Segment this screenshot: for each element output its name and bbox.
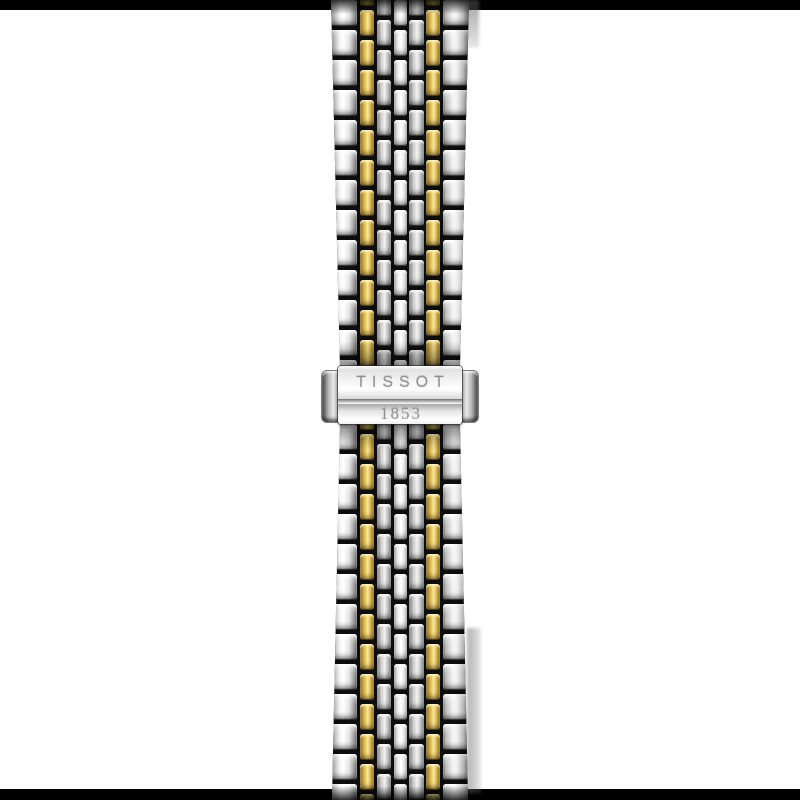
bracelet-link-gold [426,190,440,216]
bracelet-link-inner [409,594,424,620]
bracelet-link-edge [329,120,357,146]
bracelet-link-edge [329,604,357,630]
watch-bracelet: TISSOT 1853 [0,0,800,800]
bracelet-link-gold [426,280,440,306]
clasp-plate: TISSOT 1853 [338,366,462,424]
bracelet-link-inner [377,424,392,440]
bracelet-link-gold [360,494,374,520]
bracelet-link-edge [329,784,357,800]
bracelet-link-gold [426,310,440,336]
bracelet-link-gold [360,644,374,670]
bracelet-link-edge [443,240,471,266]
bracelet-link-inner [377,200,392,226]
bracelet-link-inner [377,444,392,470]
bracelet-link-center [394,784,407,800]
bracelet-link-inner [377,474,392,500]
bracelet-link-edge [329,180,357,206]
bracelet-link-inner [409,744,424,770]
bracelet-link-center [394,724,407,750]
bracelet-link-gold [360,220,374,246]
bracelet-link-edge [329,60,357,86]
bracelet-link-gold [360,130,374,156]
bracelet-link-gold [426,764,440,790]
bracelet-link-edge [443,424,471,450]
bracelet-link-center [394,240,407,266]
bracelet-link-inner [377,320,392,346]
bracelet-link-inner [377,594,392,620]
bracelet-link-inner [409,654,424,680]
bracelet-link-edge [443,634,471,660]
bracelet-link-inner [409,774,424,800]
bracelet-link-gold [360,764,374,790]
bracelet-link-gold [426,704,440,730]
clasp-left-flange [322,371,341,422]
bracelet-link-gold [360,100,374,126]
bracelet-link-edge [329,330,357,356]
bracelet-link-edge [443,270,471,296]
bracelet-link-gold [360,584,374,610]
bracelet-link-inner [377,684,392,710]
bracelet-link-gold [360,794,374,800]
bracelet-link-inner [377,260,392,286]
bracelet-link-edge [329,754,357,780]
bracelet-link-gold [426,70,440,96]
bracelet-link-edge [329,424,357,450]
bracelet-link-inner [409,80,424,106]
bracelet-link-edge [443,604,471,630]
bracelet-upper-strap [329,0,471,367]
bracelet-link-inner [409,170,424,196]
bracelet-link-center [394,330,407,356]
bracelet-link-inner [377,20,392,46]
bracelet-link-edge [443,360,471,367]
bracelet-link-center [394,180,407,206]
bracelet-link-edge [443,544,471,570]
bracelet-link-edge [443,514,471,540]
bracelet-link-gold [426,524,440,550]
bracelet-link-center [394,360,407,367]
product-photo-stage: TISSOT 1853 [0,0,800,800]
bracelet-link-edge [329,240,357,266]
bracelet-link-inner [377,80,392,106]
bracelet-link-gold [426,424,440,430]
bracelet-link-gold [360,70,374,96]
bracelet-link-edge [443,484,471,510]
bracelet-link-inner [377,504,392,530]
bracelet-link-edge [329,210,357,236]
bracelet-link-center [394,60,407,86]
bracelet-link-inner [409,0,424,16]
clasp-seam [338,399,462,404]
bracelet-link-inner [409,20,424,46]
bracelet-link-gold [360,190,374,216]
bracelet-link-inner [409,140,424,166]
bracelet-link-gold [426,674,440,700]
bracelet-link-inner [409,50,424,76]
bracelet-link-inner [409,504,424,530]
bracelet-link-edge [329,270,357,296]
bracelet-link-center [394,0,407,26]
bracelet-link-center [394,150,407,176]
bracelet-link-gold [426,434,440,460]
bracelet-link-gold [360,424,374,430]
bracelet-link-edge [329,90,357,116]
bracelet-link-inner [409,230,424,256]
bracelet-link-edge [329,544,357,570]
bracelet-link-edge [443,300,471,326]
bracelet-link-center [394,454,407,480]
bracelet-link-gold [426,464,440,490]
bracelet-link-edge [329,484,357,510]
bracelet-link-gold [426,0,440,6]
bracelet-link-center [394,604,407,630]
bracelet-link-gold [426,220,440,246]
bracelet-link-inner [409,424,424,440]
bracelet-link-center [394,664,407,690]
bracelet-link-inner [409,564,424,590]
bracelet-link-gold [360,674,374,700]
bracelet-link-edge [329,634,357,660]
bracelet-link-edge [443,0,471,26]
bracelet-link-gold [426,100,440,126]
bracelet-link-edge [443,120,471,146]
bracelet-link-center [394,574,407,600]
bracelet-link-inner [409,684,424,710]
bracelet-link-inner [409,624,424,650]
bracelet-link-center [394,484,407,510]
bracelet-link-inner [377,230,392,256]
bracelet-link-gold [426,40,440,66]
bracelet-link-gold [360,614,374,640]
bracelet-link-center [394,90,407,116]
bracelet-link-inner [409,200,424,226]
bracelet-link-edge [443,60,471,86]
bracelet-link-edge [443,574,471,600]
clasp-year-band: 1853 [338,404,462,424]
bracelet-link-center [394,300,407,326]
bracelet-link-gold [360,10,374,36]
bracelet-link-gold [360,554,374,580]
bracelet-link-gold [360,160,374,186]
bracelet-link-edge [443,664,471,690]
bracelet-link-inner [377,564,392,590]
bracelet-link-gold [360,280,374,306]
bracelet-link-inner [377,290,392,316]
bracelet-link-gold [360,524,374,550]
bracelet-link-edge [443,754,471,780]
bracelet-link-edge [329,150,357,176]
bracelet-link-center [394,424,407,450]
bracelet-link-center [394,120,407,146]
bracelet-link-inner [377,50,392,76]
bracelet-link-gold [426,130,440,156]
bracelet-link-inner [377,774,392,800]
bracelet-link-gold [426,794,440,800]
bracelet-link-gold [360,434,374,460]
bracelet-link-inner [377,170,392,196]
bracelet-link-gold [360,704,374,730]
bracelet-link-edge [329,360,357,367]
bracelet-link-gold [426,614,440,640]
bracelet-link-inner [377,350,392,367]
bracelet-link-edge [443,724,471,750]
bracelet-link-gold [360,734,374,760]
bracelet-link-center [394,544,407,570]
bracelet-link-edge [443,694,471,720]
bracelet-link-edge [329,300,357,326]
bracelet-link-inner [377,654,392,680]
bracelet-link-edge [443,330,471,356]
clasp-year-engraving: 1853 [380,404,422,424]
bracelet-link-inner [377,714,392,740]
bracelet-link-inner [409,290,424,316]
clasp-right-flange [459,371,478,422]
bracelet-link-gold [426,494,440,520]
bracelet-link-gold [426,644,440,670]
bracelet-link-inner [409,714,424,740]
bracelet-link-inner [377,624,392,650]
bracelet-link-gold [360,464,374,490]
bracelet-link-center [394,30,407,56]
bracelet-link-center [394,634,407,660]
bracelet-link-gold [360,40,374,66]
bracelet-link-gold [360,250,374,276]
bracelet-link-gold [360,340,374,366]
bracelet-link-gold [426,340,440,366]
bracelet-link-gold [426,734,440,760]
bracelet-link-inner [409,350,424,367]
bracelet-link-inner [377,534,392,560]
bracelet-link-inner [409,260,424,286]
bracelet-link-edge [329,30,357,56]
bracelet-link-gold [360,0,374,6]
bracelet-link-center [394,270,407,296]
bracelet-link-gold [360,310,374,336]
bracelet-link-edge [329,694,357,720]
bracelet-link-edge [443,90,471,116]
bracelet-link-edge [329,724,357,750]
bracelet-link-inner [377,0,392,16]
bracelet-link-gold [426,584,440,610]
bracelet-link-inner [409,444,424,470]
bracelet-link-edge [443,784,471,800]
bracelet-link-center [394,210,407,236]
bracelet-link-edge [329,574,357,600]
bracelet-link-edge [443,210,471,236]
bracelet-link-edge [329,514,357,540]
bracelet-link-inner [409,320,424,346]
bracelet-link-gold [426,554,440,580]
bracelet-link-inner [377,110,392,136]
bracelet-link-edge [443,454,471,480]
clasp-brand-band: TISSOT [338,366,462,399]
bracelet-link-center [394,514,407,540]
bracelet-lower-strap [329,424,471,800]
bracelet-link-inner [409,534,424,560]
bracelet-link-edge [443,30,471,56]
bracelet-link-inner [377,744,392,770]
bracelet-link-gold [426,250,440,276]
bracelet-link-inner [409,474,424,500]
bracelet-link-inner [409,110,424,136]
bracelet-link-edge [329,664,357,690]
bracelet-link-edge [443,180,471,206]
bracelet-link-edge [443,150,471,176]
bracelet-link-gold [426,160,440,186]
bracelet-link-edge [329,0,357,26]
bracelet-link-center [394,694,407,720]
bracelet-link-gold [426,10,440,36]
bracelet-link-edge [329,454,357,480]
clasp-brand-engraving: TISSOT [356,374,450,392]
bracelet-link-center [394,754,407,780]
bracelet-link-inner [377,140,392,166]
